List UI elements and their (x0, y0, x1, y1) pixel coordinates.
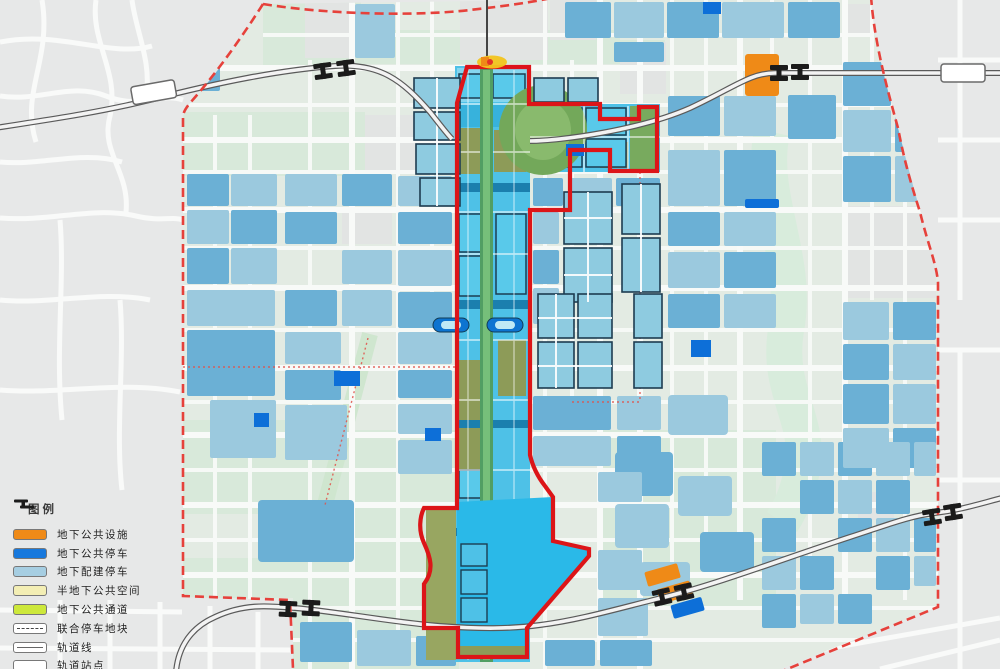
legend-swatch-semi-underground-public-space (13, 585, 47, 596)
legend-swatch-rail-station (13, 660, 47, 669)
legend-label: 半地下公共空间 (57, 583, 141, 598)
planning-map-page: 图例 地下公共设施 地下公共停车 地下配建停车 半地下公共空间 地下公共通道 联… (0, 0, 1000, 669)
axis-gateway-marker (477, 56, 507, 69)
legend-swatch-underground-ancillary-parking (13, 566, 47, 577)
legend-swatch-underground-public-passage (13, 604, 47, 615)
legend-title: 图例 (28, 501, 187, 517)
legend-item: 地下配建停车 (12, 563, 187, 582)
legend: 图例 地下公共设施 地下公共停车 地下配建停车 半地下公共空间 地下公共通道 联… (12, 499, 187, 669)
legend-label: 轨道线 (57, 640, 93, 655)
legend-swatch-underground-public-parking (13, 548, 47, 559)
legend-item: 地下公共通道 (12, 600, 187, 619)
legend-label: 地下公共通道 (57, 602, 129, 617)
legend-item: 半地下公共空间 (12, 581, 187, 600)
legend-item: 地下公共设施 (12, 525, 187, 544)
legend-item: 轨道站点 (12, 657, 187, 669)
rail-station-box-east (941, 64, 985, 82)
lake-west-greens (426, 508, 456, 660)
legend-label: 地下公共设施 (57, 527, 129, 542)
legend-item: 地下公共停车 (12, 544, 187, 563)
legend-label: 地下配建停车 (57, 564, 129, 579)
legend-item: 轨道线 (12, 638, 187, 657)
legend-item: 联合停车地块 (12, 619, 187, 638)
legend-swatch-underground-public-facility (13, 529, 47, 540)
lake-side-blocks (461, 544, 487, 622)
legend-label: 地下公共停车 (57, 546, 129, 561)
legend-label: 轨道站点 (57, 658, 105, 669)
legend-label: 联合停车地块 (57, 621, 129, 636)
rail-station-icon (12, 499, 36, 509)
legend-swatch-rail-line (13, 642, 47, 653)
legend-swatch-joint-parking-plot (13, 623, 47, 634)
